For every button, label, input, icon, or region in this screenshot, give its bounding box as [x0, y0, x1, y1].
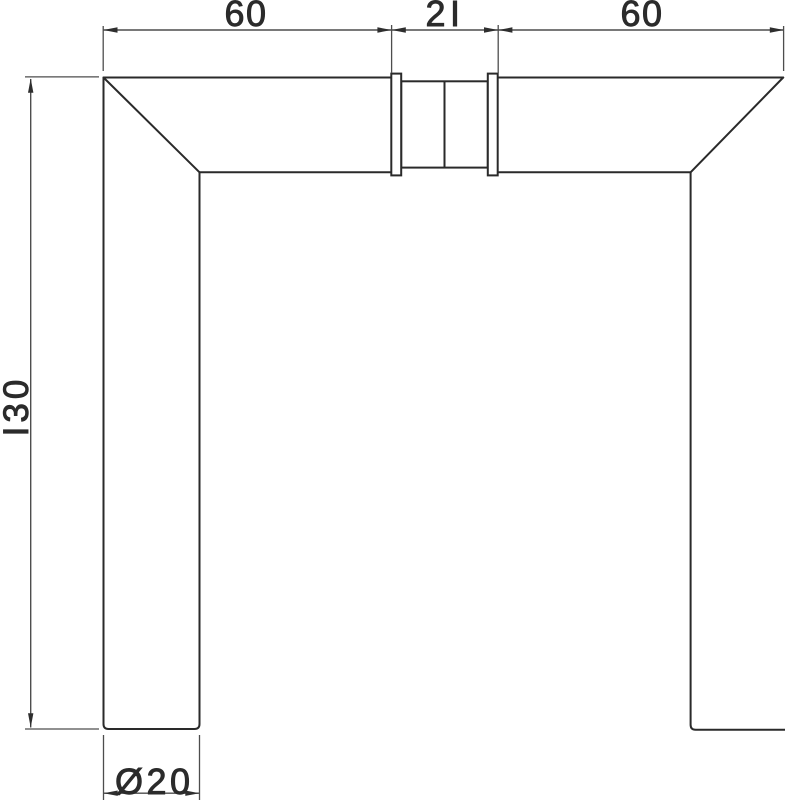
svg-text:60: 60	[224, 0, 267, 34]
svg-text:Ø20: Ø20	[115, 761, 194, 800]
svg-text:60: 60	[620, 0, 663, 34]
svg-text:I30: I30	[0, 376, 36, 437]
svg-text:2I: 2I	[425, 0, 464, 34]
